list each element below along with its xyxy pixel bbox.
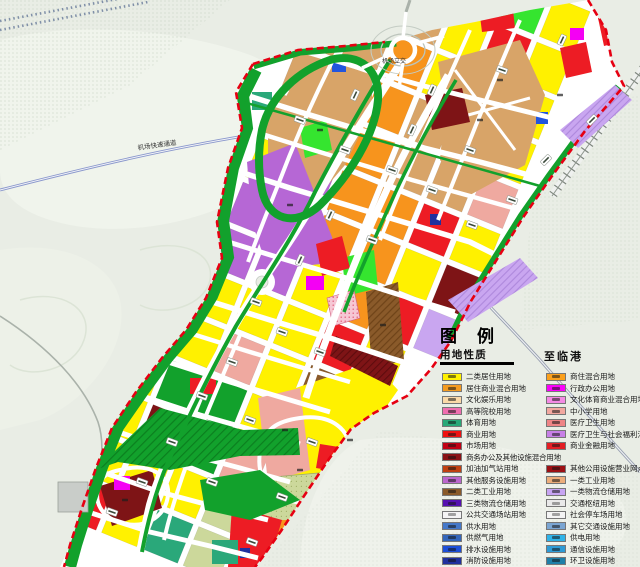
legend-item: 排水设施用地 [442,544,546,556]
legend-label: 交通枢纽用地 [570,500,615,508]
legend-label: 社会停车场用地 [570,511,623,519]
legend-item: 商务办公及其他设施混合用地 [442,452,546,464]
parcel-code-mark [497,79,503,81]
legend-swatch [546,511,566,519]
legend-label: 商住混合用地 [570,373,615,381]
legend-item: 文化体育商业混合用地 [546,394,640,406]
legend-item: 环卫设施用地 [546,555,640,567]
legend-label: 高等院校用地 [466,408,511,416]
legend-swatch [546,396,566,404]
legend-swatch [442,511,462,519]
legend-column-right: 商住混合用地行政办公用地文化体育商业混合用地中小学用地医疗卫生用地医疗卫生与社会… [546,371,640,567]
parcel-code-mark [347,439,353,441]
parcel-code-mark [297,469,303,471]
legend-swatch [546,384,566,392]
legend-swatch [546,442,566,450]
parcel-code-mark [282,429,288,431]
legend-label: 供燃气用地 [466,534,504,542]
legend-label: 居住商业混合用地 [466,385,526,393]
legend-item: 医疗卫生用地 [546,417,640,429]
legend-swatch [442,534,462,542]
legend-label: 加油加气站用地 [466,465,519,473]
legend-label: 商业金融用地 [570,442,615,450]
legend-item: 高等院校用地 [442,406,546,418]
legend-item: 供电用地 [546,532,640,544]
legend-columns: 二类居住用地居住商业混合用地文化娱乐用地高等院校用地体育用地商业用地市场用地商务… [442,371,640,567]
legend-column-left: 二类居住用地居住商业混合用地文化娱乐用地高等院校用地体育用地商业用地市场用地商务… [442,371,546,567]
legend-swatch [546,419,566,427]
legend-label: 公共交通场站用地 [466,511,526,519]
legend-label: 文化娱乐用地 [466,396,511,404]
legend-title: 图 例 [440,328,640,345]
legend-swatch [442,557,462,565]
legend-swatch [442,384,462,392]
legend-label: 消防设施用地 [466,557,511,565]
legend-item: 二类工业用地 [442,486,546,498]
legend-label: 医疗卫生用地 [570,419,615,427]
legend-swatch [442,545,462,553]
legend-swatch [546,545,566,553]
legend-item: 商业用地 [442,429,546,441]
legend-swatch [546,476,566,484]
legend-swatch [546,488,566,496]
legend-label: 环卫设施用地 [570,557,615,565]
legend-swatch [442,407,462,415]
legend-label: 其他服务设施用地 [466,477,526,485]
legend-label: 行政办公用地 [570,385,615,393]
legend-label: 商业用地 [466,431,496,439]
legend-swatch [442,488,462,496]
legend-label: 市场用地 [466,442,496,450]
legend-subtitle-underline [440,362,514,365]
planning-map-screenshot: 机场快速通道 机场立交 图 例 用地性质 至临港 二类居住用地居住商业混合用地文… [0,0,640,567]
parcel-code-mark [317,129,323,131]
legend-swatch [442,419,462,427]
legend-swatch [546,373,566,381]
legend-label: 供水用地 [466,523,496,531]
legend-item: 一类物流仓储用地 [546,486,640,498]
legend-swatch [546,465,566,473]
legend-item: 商业金融用地 [546,440,640,452]
legend-item: 一类工业用地 [546,475,640,487]
legend-item: 商住混合用地 [546,371,640,383]
legend-label: 一类物流仓储用地 [570,488,630,496]
legend-swatch [442,499,462,507]
legend-swatch [442,522,462,530]
legend-item: 公共交通场站用地 [442,509,546,521]
legend-item: 供水用地 [442,521,546,533]
legend-item [546,452,640,464]
legend-item: 文化娱乐用地 [442,394,546,406]
legend-label: 通信设施用地 [570,546,615,554]
legend-item: 医疗卫生与社会福利混合用地 [546,429,640,441]
legend-swatch [442,476,462,484]
legend-item: 消防设施用地 [442,555,546,567]
legend-swatch [442,453,462,461]
legend-item: 中小学用地 [546,406,640,418]
legend-item: 供燃气用地 [442,532,546,544]
legend-swatch [442,373,462,381]
legend-swatch [546,534,566,542]
legend-swatch [442,396,462,404]
legend-label: 二类居住用地 [466,373,511,381]
legend-label: 其他公用设施营业网点用地 [570,465,640,473]
legend-swatch [546,499,566,507]
legend-label: 一类工业用地 [570,477,615,485]
legend-label: 排水设施用地 [466,546,511,554]
legend-label: 体育用地 [466,419,496,427]
legend-label: 其它交通设施用地 [570,523,630,531]
parcel-code-mark [477,119,483,121]
legend-swatch [546,430,566,438]
legend-item: 加油加气站用地 [442,463,546,475]
legend-item: 其他服务设施用地 [442,475,546,487]
legend-label: 文化体育商业混合用地 [570,396,640,404]
legend-label: 三类物流仓储用地 [466,500,526,508]
legend-swatch [442,442,462,450]
legend-label: 中小学用地 [570,408,608,416]
legend-swatch [546,557,566,565]
legend-item: 居住商业混合用地 [442,383,546,395]
legend-subtitle: 用地性质 [440,350,514,361]
legend-item: 社会停车场用地 [546,509,640,521]
legend: 图 例 用地性质 至临港 二类居住用地居住商业混合用地文化娱乐用地高等院校用地体… [440,328,640,567]
legend-item: 三类物流仓储用地 [442,498,546,510]
legend-item: 交通枢纽用地 [546,498,640,510]
legend-swatch [442,465,462,473]
legend-item: 通信设施用地 [546,544,640,556]
legend-item: 体育用地 [442,417,546,429]
parking-parcel [58,482,88,512]
legend-item: 行政办公用地 [546,383,640,395]
parcel-code-mark [287,204,293,206]
legend-label: 医疗卫生与社会福利混合用地 [570,431,640,439]
interchange-label: 机场立交 [382,57,406,65]
legend-item: 市场用地 [442,440,546,452]
legend-swatch [546,407,566,415]
legend-label: 供电用地 [570,534,600,542]
parcel-code-mark [557,94,563,96]
legend-item: 二类居住用地 [442,371,546,383]
legend-swatch [546,522,566,530]
legend-item: 其他公用设施营业网点用地 [546,463,640,475]
parcel-code-mark [122,499,128,501]
direction-label-lingang: 至临港 [544,348,583,364]
legend-swatch [442,430,462,438]
legend-item: 其它交通设施用地 [546,521,640,533]
parcel-code-mark [380,324,386,326]
legend-label: 二类工业用地 [466,488,511,496]
